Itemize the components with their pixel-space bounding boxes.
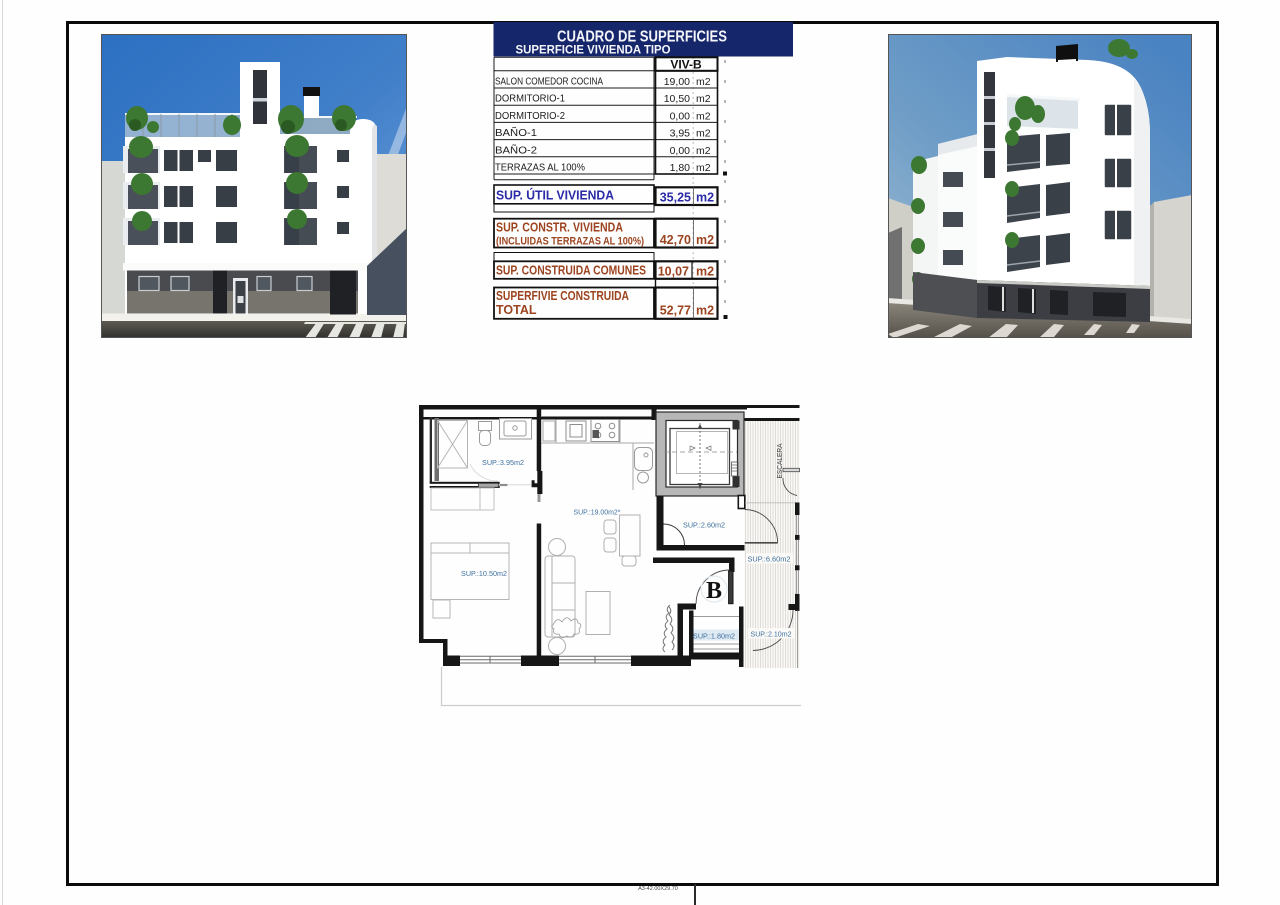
svg-text:BAÑO-1: BAÑO-1 (495, 126, 537, 139)
svg-text:TERRAZAS AL 100%: TERRAZAS AL 100% (495, 163, 585, 174)
svg-text:B: B (706, 578, 722, 604)
svg-text:m2: m2 (696, 110, 711, 122)
svg-text:VIV-B: VIV-B (670, 58, 702, 72)
svg-text:m2: m2 (696, 128, 711, 140)
svg-text:DORMITORIO-2: DORMITORIO-2 (495, 111, 565, 122)
svg-text:BAÑO-2: BAÑO-2 (495, 143, 537, 156)
svg-text:0,00: 0,00 (670, 145, 691, 157)
svg-text:SUP.:2.10m2: SUP.:2.10m2 (751, 630, 792, 639)
svg-text:ESCALERA: ESCALERA (775, 443, 784, 478)
svg-text:TOTAL: TOTAL (496, 303, 537, 317)
svg-text:SUP. CONSTRUIDA COMUNES: SUP. CONSTRUIDA COMUNES (496, 264, 646, 278)
svg-text:19,00: 19,00 (664, 76, 690, 88)
svg-text:10,07: 10,07 (658, 265, 689, 279)
svg-text:42,70: 42,70 (660, 233, 691, 247)
svg-text:SUP.:10.50m2: SUP.:10.50m2 (461, 569, 507, 578)
svg-text:SUP.:2.60m2: SUP.:2.60m2 (683, 521, 725, 530)
svg-text:SUPERFICIE VIVIENDA TIPO: SUPERFICIE VIVIENDA TIPO (516, 43, 671, 57)
svg-text:SUP.:1.80m2: SUP.:1.80m2 (693, 632, 735, 641)
svg-text:3,95: 3,95 (670, 128, 691, 140)
svg-text:m2: m2 (696, 76, 711, 88)
svg-text:10,50: 10,50 (664, 93, 690, 105)
svg-text:SUP.:6.60m2: SUP.:6.60m2 (748, 555, 791, 564)
svg-text:SUP.:19.00m2*: SUP.:19.00m2* (574, 508, 621, 517)
svg-text:SALON COMEDOR COCINA: SALON COMEDOR COCINA (495, 77, 603, 88)
svg-text:SUPERFIVIE CONSTRUIDA: SUPERFIVIE CONSTRUIDA (496, 289, 629, 303)
svg-text:m2: m2 (696, 145, 711, 157)
svg-text:m2: m2 (696, 304, 714, 318)
svg-text:DORMITORIO-1: DORMITORIO-1 (495, 94, 565, 105)
svg-text:0,00: 0,00 (670, 110, 691, 122)
svg-text:m2: m2 (696, 162, 711, 174)
svg-text:m2: m2 (696, 233, 714, 247)
svg-text:SUP.:3.95m2: SUP.:3.95m2 (482, 458, 524, 467)
svg-text:(INCLUIDAS TERRAZAS AL 100%): (INCLUIDAS TERRAZAS AL 100%) (496, 236, 644, 248)
svg-text:1,80: 1,80 (670, 162, 691, 174)
svg-text:52,77: 52,77 (660, 304, 691, 318)
svg-text:m2: m2 (696, 93, 711, 105)
svg-text:35,25: 35,25 (660, 191, 691, 205)
svg-text:SUP. ÚTIL VIVIENDA: SUP. ÚTIL VIVIENDA (496, 188, 615, 203)
svg-text:m2: m2 (696, 265, 714, 279)
svg-text:SUP. CONSTR. VIVIENDA: SUP. CONSTR. VIVIENDA (496, 221, 623, 235)
svg-text:m2: m2 (696, 191, 714, 205)
